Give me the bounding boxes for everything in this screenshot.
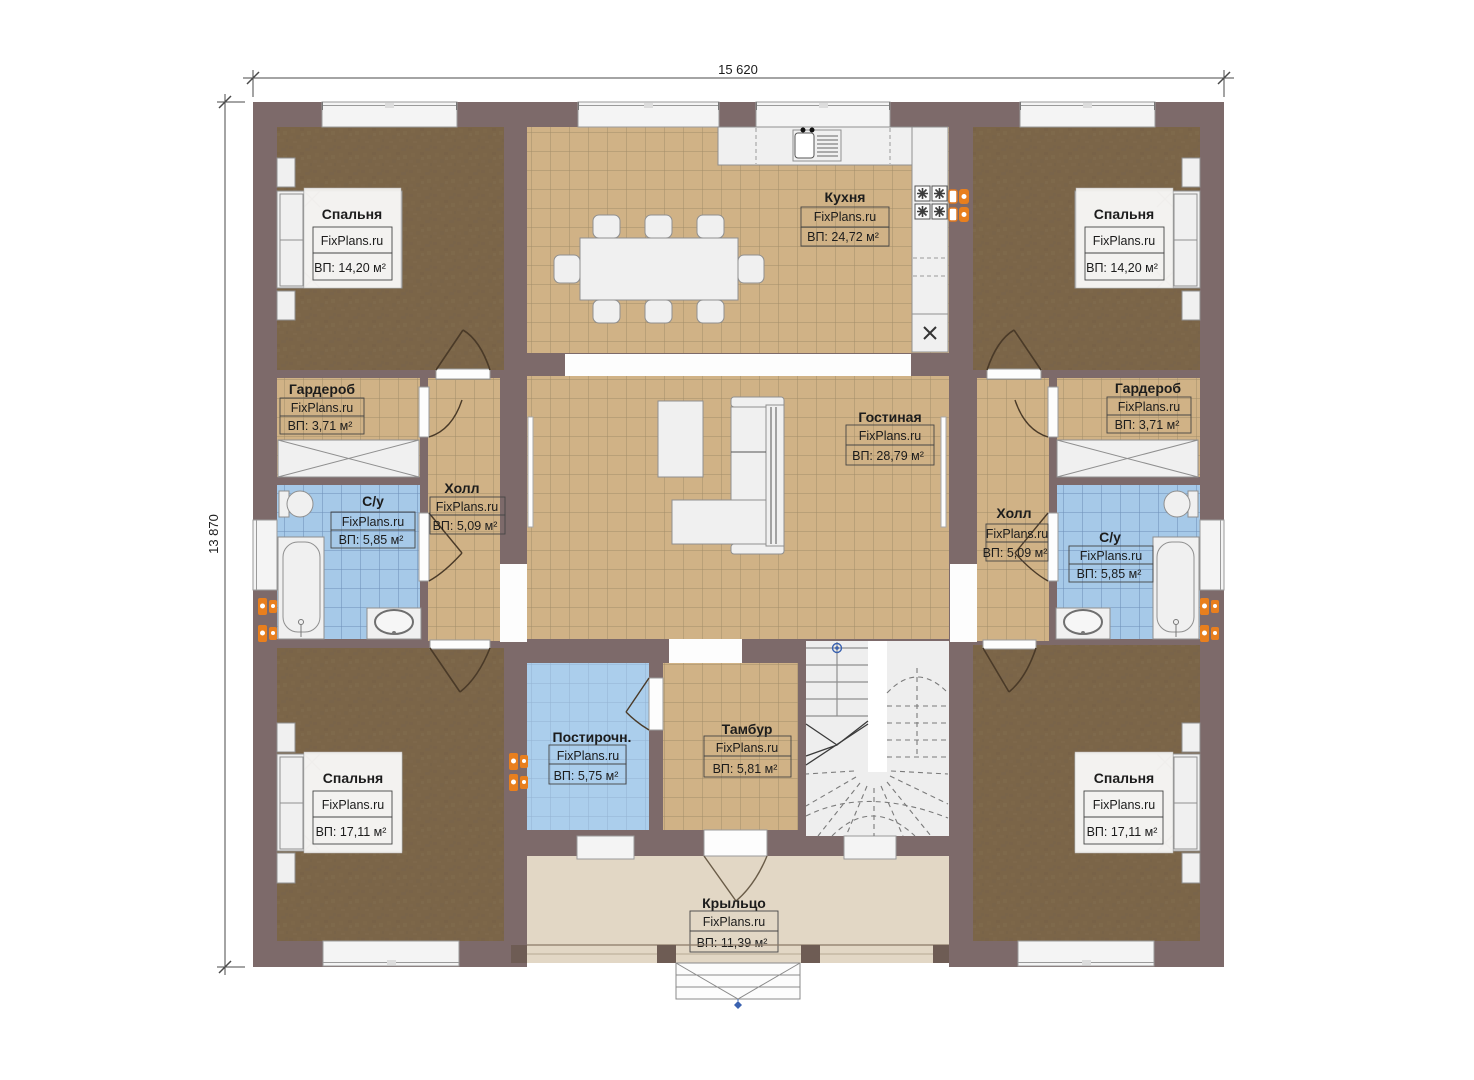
svg-text:ВП: 5,85 м²: ВП: 5,85 м² <box>1077 567 1142 581</box>
svg-text:FixPlans.ru: FixPlans.ru <box>291 401 354 415</box>
svg-text:13 870: 13 870 <box>206 514 221 554</box>
svg-text:FixPlans.ru: FixPlans.ru <box>321 234 384 248</box>
svg-text:ВП: 14,20 м²: ВП: 14,20 м² <box>314 261 386 275</box>
svg-text:С/у: С/у <box>1099 529 1121 545</box>
svg-text:FixPlans.ru: FixPlans.ru <box>986 527 1049 541</box>
svg-text:ВП: 5,75 м²: ВП: 5,75 м² <box>554 769 619 783</box>
svg-text:ВП: 5,85 м²: ВП: 5,85 м² <box>339 533 404 547</box>
svg-text:ВП: 11,39 м²: ВП: 11,39 м² <box>697 936 768 950</box>
svg-text:Крыльцо: Крыльцо <box>702 895 766 911</box>
svg-text:Холл: Холл <box>444 480 479 496</box>
svg-text:Кухня: Кухня <box>825 189 866 205</box>
svg-text:FixPlans.ru: FixPlans.ru <box>859 429 922 443</box>
svg-text:ВП: 28,79 м²: ВП: 28,79 м² <box>852 449 924 463</box>
svg-text:Гостиная: Гостиная <box>858 409 921 425</box>
svg-text:Спальня: Спальня <box>1094 206 1154 222</box>
svg-text:ВП: 17,11 м²: ВП: 17,11 м² <box>1087 825 1158 839</box>
svg-text:FixPlans.ru: FixPlans.ru <box>322 798 385 812</box>
svg-text:FixPlans.ru: FixPlans.ru <box>1093 798 1156 812</box>
svg-text:Постирочн.: Постирочн. <box>553 729 632 745</box>
svg-text:FixPlans.ru: FixPlans.ru <box>557 749 620 763</box>
svg-text:Спальня: Спальня <box>1094 770 1154 786</box>
svg-text:ВП: 5,09 м²: ВП: 5,09 м² <box>433 519 498 533</box>
svg-text:ВП: 3,71 м²: ВП: 3,71 м² <box>1115 418 1180 432</box>
svg-text:Холл: Холл <box>996 505 1031 521</box>
svg-text:Тамбур: Тамбур <box>722 721 773 737</box>
svg-text:ВП: 17,11 м²: ВП: 17,11 м² <box>316 825 387 839</box>
svg-text:FixPlans.ru: FixPlans.ru <box>1080 549 1143 563</box>
svg-text:15 620: 15 620 <box>718 62 758 77</box>
svg-text:Спальня: Спальня <box>323 770 383 786</box>
svg-text:ВП: 5,81 м²: ВП: 5,81 м² <box>713 762 778 776</box>
svg-text:FixPlans.ru: FixPlans.ru <box>1118 400 1181 414</box>
svg-text:ВП: 14,20 м²: ВП: 14,20 м² <box>1086 261 1158 275</box>
svg-text:FixPlans.ru: FixPlans.ru <box>716 741 779 755</box>
svg-text:Гардероб: Гардероб <box>289 381 356 397</box>
svg-text:С/у: С/у <box>362 493 384 509</box>
svg-text:ВП: 3,71 м²: ВП: 3,71 м² <box>288 419 353 433</box>
svg-text:FixPlans.ru: FixPlans.ru <box>703 915 766 929</box>
svg-text:FixPlans.ru: FixPlans.ru <box>814 210 877 224</box>
svg-text:ВП: 24,72 м²: ВП: 24,72 м² <box>807 230 879 244</box>
svg-text:FixPlans.ru: FixPlans.ru <box>342 515 405 529</box>
svg-text:ВП: 5,09 м²: ВП: 5,09 м² <box>983 546 1048 560</box>
svg-text:FixPlans.ru: FixPlans.ru <box>436 500 499 514</box>
svg-text:Спальня: Спальня <box>322 206 382 222</box>
svg-text:FixPlans.ru: FixPlans.ru <box>1093 234 1156 248</box>
svg-text:Гардероб: Гардероб <box>1115 380 1182 396</box>
